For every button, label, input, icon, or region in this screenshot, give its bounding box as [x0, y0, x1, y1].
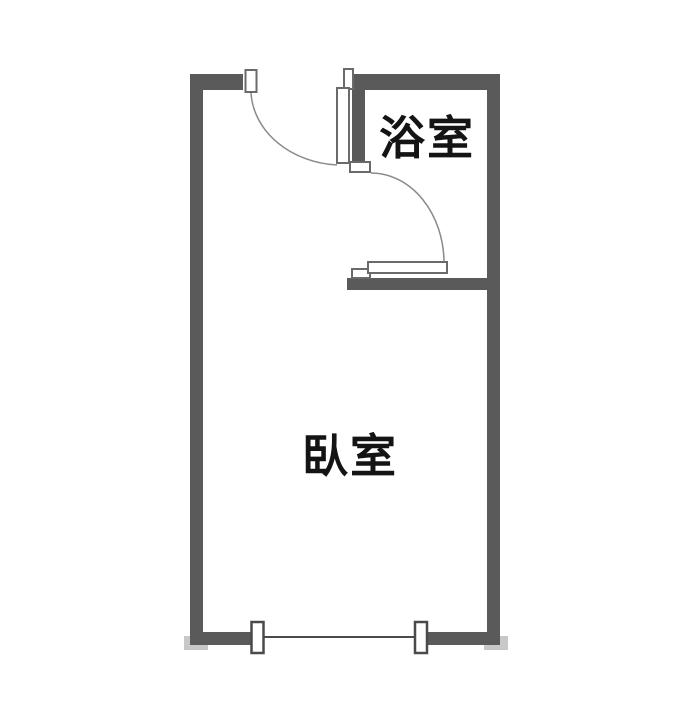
bathroom-label: 浴室: [379, 112, 475, 164]
entry-door-jamb-left: [246, 70, 257, 92]
entry-door-leaf: [337, 88, 349, 163]
entry-door-swing-arc: [251, 93, 337, 165]
bathroom-door-swing-arc: [371, 173, 444, 263]
bedroom-label: 臥室: [302, 430, 398, 482]
wall-top-left-segment: [190, 74, 243, 90]
wall-bottom-left-segment: [190, 632, 256, 645]
wall-right: [487, 74, 500, 645]
wall-left: [190, 74, 203, 645]
wall-bottom-right-segment: [421, 632, 500, 645]
floor-plan-canvas: 浴室 臥室: [0, 0, 694, 716]
bathroom-door-leaf: [368, 262, 447, 273]
window-post-left: [252, 622, 264, 653]
wall-top-right-segment: [352, 74, 500, 90]
window-post-right: [415, 622, 427, 653]
bathroom-door-jamb-top: [350, 162, 370, 172]
floor-plan-page: 浴室 臥室: [0, 0, 694, 716]
entry-door-jamb-right: [344, 69, 353, 89]
wall-bathroom-bottom: [347, 278, 500, 290]
